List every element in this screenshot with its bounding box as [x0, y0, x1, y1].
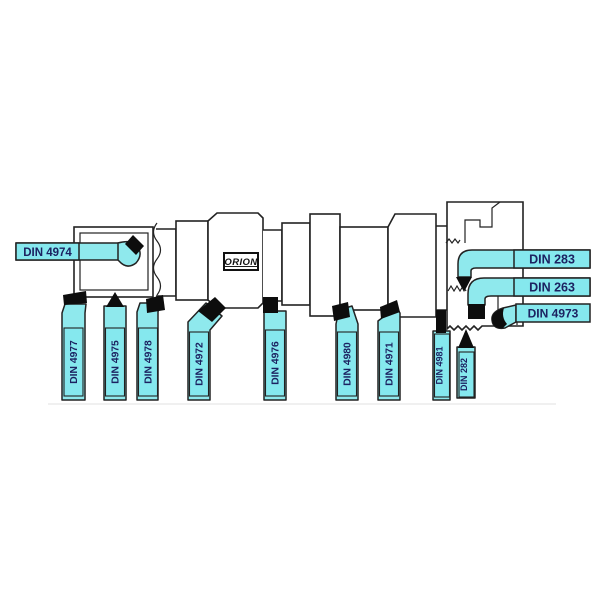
label-din-4971: DIN 4971 [385, 342, 396, 386]
label-din-4980: DIN 4980 [343, 342, 354, 386]
label-din-4977: DIN 4977 [69, 340, 80, 384]
label-din-263: DIN 263 [529, 281, 575, 295]
shaft-collar [310, 214, 340, 316]
tool-din-4972: DIN 4972 [188, 297, 226, 400]
tool-din-282-tip [458, 329, 474, 348]
tool-din-4977-tip [63, 291, 87, 305]
tool-din-4971: DIN 4971 [378, 300, 400, 400]
tool-din-282: DIN 282 [457, 329, 475, 398]
shaft-section-2a [263, 230, 282, 301]
shaft-section-1 [176, 221, 208, 300]
brand-logo-text: ORION [224, 257, 258, 268]
brand-mark: ORION [224, 253, 258, 270]
shaft-section-2b [282, 223, 310, 305]
label-din-282: DIN 282 [459, 358, 469, 391]
tool-din-263-tip [468, 304, 485, 319]
tool-din-4975: DIN 4975 [104, 292, 126, 400]
tool-din-4976: DIN 4976 [263, 297, 286, 400]
shaft-left-end [74, 227, 153, 297]
tool-din-4977: DIN 4977 [62, 291, 87, 400]
shaft-section-break [156, 229, 176, 296]
tool-din-4976-tip [263, 297, 278, 313]
shaft-neck [436, 226, 447, 310]
label-din-4981: DIN 4981 [435, 346, 445, 384]
label-din-4975: DIN 4975 [111, 340, 122, 384]
din-turning-tools-diagram: DIN 4974 DIN 283 DIN 263 DIN 4973 DIN 49… [0, 0, 600, 600]
tool-din-4978: DIN 4978 [137, 295, 165, 400]
label-din-4972: DIN 4972 [195, 342, 206, 386]
label-din-4973: DIN 4973 [528, 307, 579, 321]
tool-din-4973: DIN 4973 [492, 304, 590, 328]
label-din-4974: DIN 4974 [23, 247, 72, 259]
tool-din-4980: DIN 4980 [332, 302, 358, 400]
label-din-283: DIN 283 [529, 253, 575, 267]
tool-din-4981-tip [436, 310, 446, 333]
shaft-section-3 [340, 227, 388, 310]
label-din-4978: DIN 4978 [144, 340, 155, 384]
label-din-4976: DIN 4976 [271, 341, 282, 385]
